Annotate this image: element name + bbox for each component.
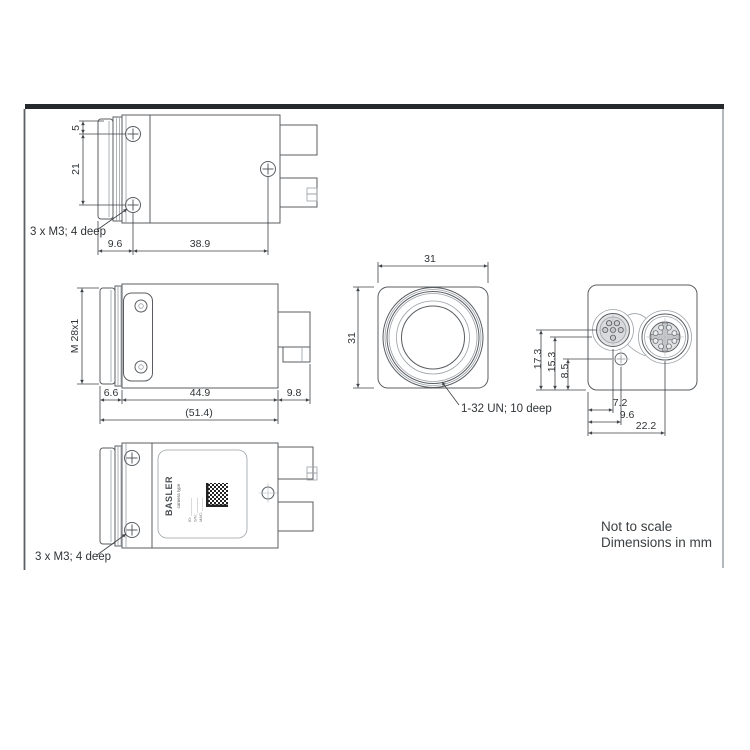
footer-notes: Not to scale Dimensions in mm [601,519,712,550]
drawing-canvas: 5 21 9.6 38.9 3 x M3; 4 deep [0,0,750,750]
label-mac-line: MAC: ______ [198,497,203,522]
note-m3-bottom: 3 x M3; 4 deep [35,551,111,563]
note-not-to-scale: Not to scale [601,519,672,534]
dim-9-8: 9.8 [287,387,302,399]
screw-icon [126,198,141,213]
product-label: BASLER camera type ID: ________ S/N: ___… [158,450,247,538]
screw-icon [125,451,140,466]
dimensional-drawing: 5 21 9.6 38.9 3 x M3; 4 deep [0,0,750,750]
label-sn-line: S/N: _______ [193,497,198,522]
lens-mount-icon [383,288,483,388]
dim-9-6: 9.6 [108,238,123,250]
frame-top-bar [25,104,724,109]
note-lens-thread: 1-32 UN; 10 deep [461,403,552,415]
view-side-bottom: BASLER camera type ID: ________ S/N: ___… [35,443,317,563]
view-front: 31 31 1-32 UN; 10 deep [346,253,552,415]
dim-8-5: 8.5 [559,364,571,379]
dim-44-9: 44.9 [190,387,211,399]
dim-front-width: 31 [424,253,436,265]
label-brand: BASLER [164,476,174,516]
dim-51-4: (51.4) [185,407,212,419]
view-rear: 17.3 15.3 8.5 7.2 9.6 22.2 [532,285,697,436]
dim-front-height: 31 [346,332,358,344]
dim-38-9: 38.9 [190,238,211,250]
view-side-top: 5 21 9.6 38.9 3 x M3; 4 deep [30,115,317,255]
label-camera-type: camera type [176,483,181,508]
dim-7-2: 7.2 [613,397,628,409]
screw-icon [261,162,276,177]
label-id-line: ID: ________ [187,497,192,522]
screw-icon [135,361,147,373]
screw-icon [126,127,141,142]
note-dimensions-mm: Dimensions in mm [601,535,712,550]
dim-thread: M 28x1 [69,319,81,354]
screw-icon [135,300,147,312]
view-side-middle: M 28x1 6.6 44.9 9.8 (51.4) [69,284,310,424]
screw-icon [612,350,630,368]
note-m3-top: 3 x M3; 4 deep [30,226,106,238]
dim-21: 21 [70,163,82,175]
dim-9-6-rear: 9.6 [620,409,635,421]
screw-icon [125,523,140,538]
dim-5: 5 [70,125,82,131]
dim-6-6: 6.6 [104,387,119,399]
datamatrix-code-icon [206,483,228,507]
dim-22-2: 22.2 [636,420,657,432]
screw-icon [259,484,278,503]
dim-17-3: 17.3 [532,349,544,370]
dim-15-3: 15.3 [546,352,558,373]
